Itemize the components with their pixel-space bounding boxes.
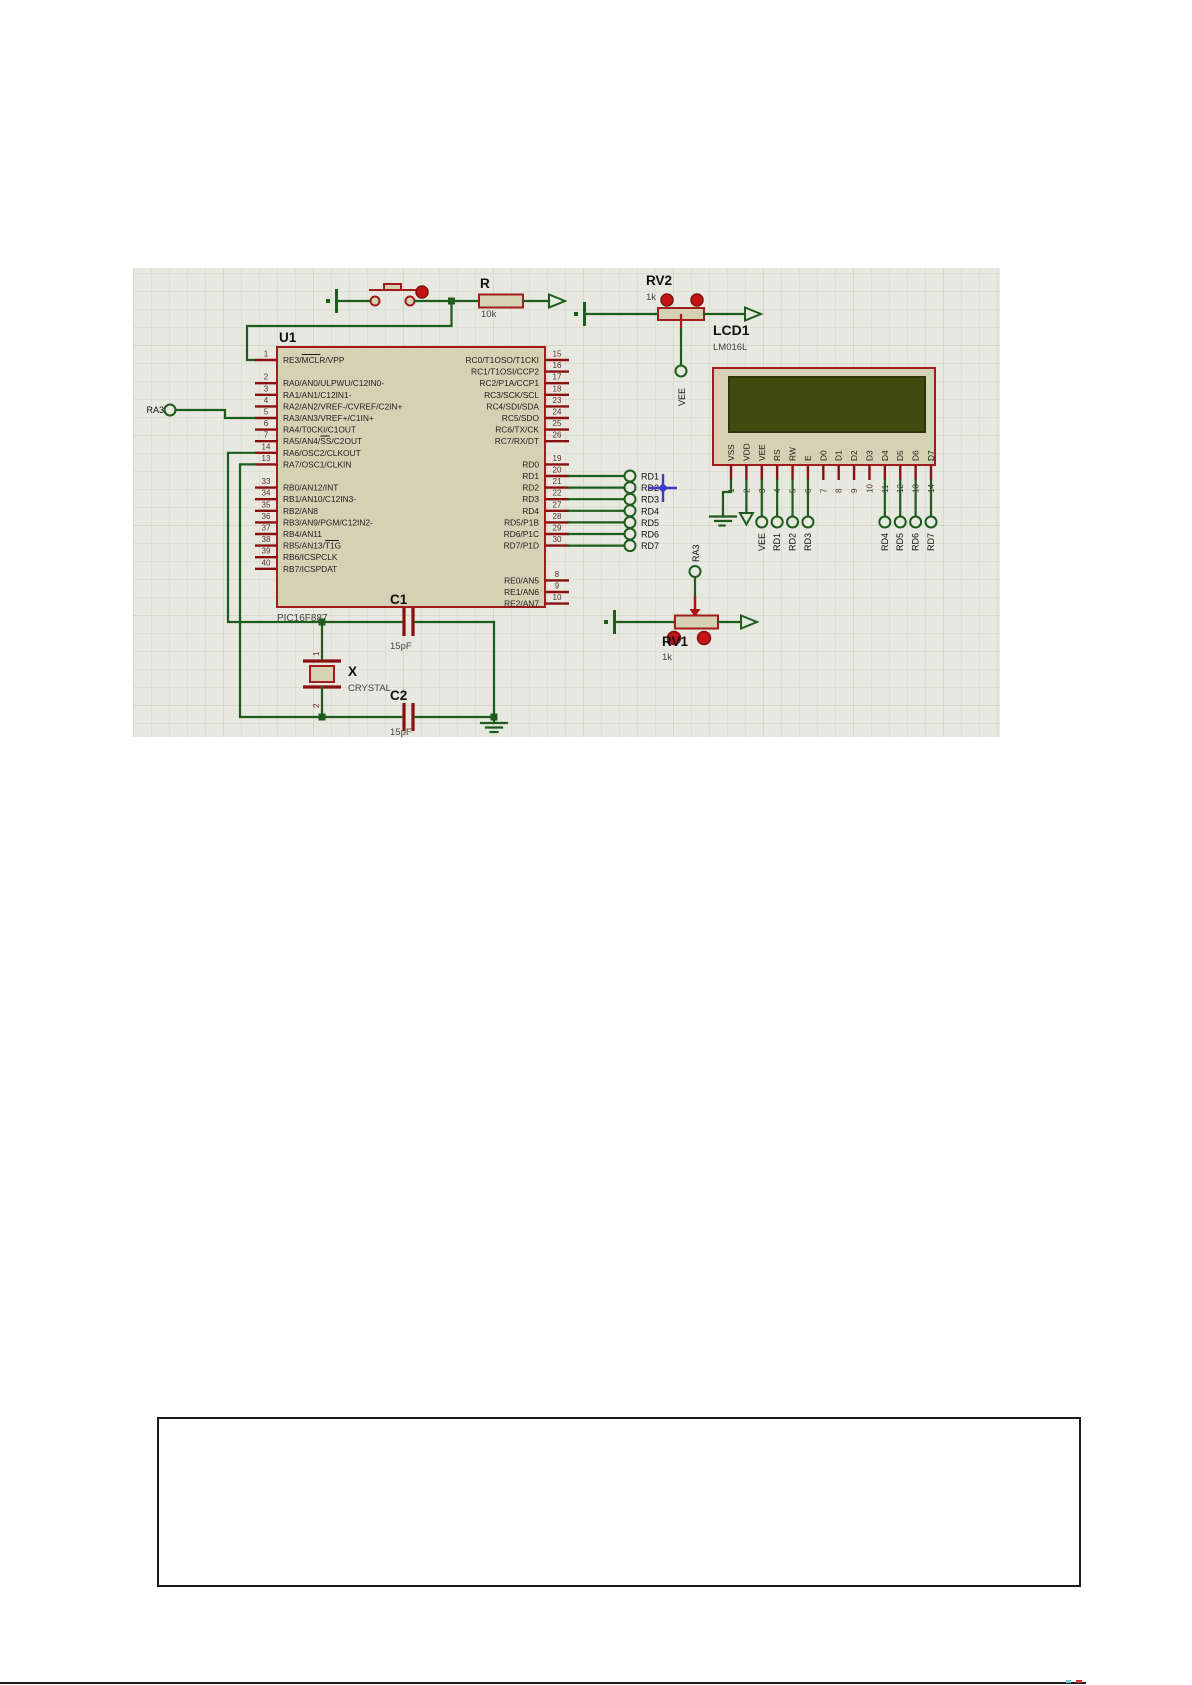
lcd-pin-label: VEE: [757, 444, 767, 461]
mcu-left-pin-name: RB7/ICSPDAT: [283, 564, 337, 574]
mcu-left-pin-number: 36: [262, 512, 271, 521]
schematic-image: R 10k RV2 1k VEE RA3: [133, 255, 1000, 737]
mcu-right-pin-number: 23: [553, 396, 562, 405]
lcd-pin-label: VDD: [741, 443, 751, 461]
mcu-right-pin-number: 27: [553, 500, 562, 509]
rd-terminal: [625, 529, 636, 540]
ra3-label: RA3: [146, 405, 164, 415]
mcu-left-pin-number: 35: [262, 500, 271, 509]
mcu-right-pin-name: RC2/P1A/CCP1: [479, 378, 539, 388]
vee-label: VEE: [677, 388, 687, 406]
mcu-left-pin-number: 33: [262, 477, 271, 486]
lcd-pin-number: 7: [819, 488, 828, 493]
mcu-right-pin-number: 29: [553, 524, 562, 533]
lcd-pin-label: D6: [911, 450, 921, 461]
power-dot: [574, 312, 578, 316]
mcu-left-pin-number: 5: [264, 408, 269, 417]
lcd-pin-label: D0: [818, 450, 828, 461]
mcu-right-pin-name: RD3: [522, 494, 539, 504]
mcu-left-pin-number: 7: [264, 431, 269, 440]
lcd-net-terminal-label: RD6: [911, 533, 921, 551]
lcd-net-terminal: [787, 517, 798, 528]
mcu-left-pin-number: 3: [264, 384, 269, 393]
mcu-right-pin-name: RD7/P1D: [504, 541, 539, 551]
rv2-ref: RV2: [646, 273, 672, 288]
ra3-label: RA3: [691, 544, 701, 562]
lcd-net-terminal: [756, 517, 767, 528]
lcd-pin-label: VSS: [726, 444, 736, 461]
lcd-part: LM016L: [713, 342, 747, 353]
mcu: U1 PIC16F887 1RE3/MCLR/VPP2RA0/AN0/ULPWU…: [255, 330, 569, 624]
rd-terminal: [625, 540, 636, 551]
rd-terminal-label: RD1: [641, 472, 659, 482]
lcd-pin-label: D2: [849, 450, 859, 461]
rd-terminal-label: RD5: [641, 518, 659, 528]
mcu-right-pin-number: 21: [553, 477, 562, 486]
lcd-net-terminal-label: RD7: [926, 533, 936, 551]
lcd-net-terminal: [895, 517, 906, 528]
mcu-left-pin-name: RB0/AN12/INT: [283, 483, 338, 493]
lcd-net-terminal: [926, 517, 937, 528]
lcd-pin-label: D4: [880, 450, 890, 461]
mcu-right-pin-number: 30: [553, 535, 562, 544]
mcu-left-pin-number: 1: [264, 350, 269, 359]
mcu-right-pin-name: RD6/P1C: [504, 529, 539, 539]
resistor-ref: R: [480, 276, 490, 291]
rd-terminal: [625, 505, 636, 516]
logic-state-dot: [416, 286, 428, 298]
rd-terminal: [625, 494, 636, 505]
mcu-right-pin-name: RC3/SCK/SCL: [484, 390, 539, 400]
lcd-net-terminal-label: RD3: [803, 533, 813, 551]
mcu-left-pin-number: 39: [262, 547, 271, 556]
empty-answer-box: [157, 1417, 1081, 1587]
mcu-right-pin-number: 22: [553, 489, 562, 498]
mcu-left-pin-name: RA6/OSC2/CLKOUT: [283, 448, 361, 458]
pushbutton-cap: [384, 284, 401, 290]
rd-terminal: [625, 482, 636, 493]
mcu-left-pin-name: RE3/MCLR/VPP: [283, 355, 345, 365]
lcd-pin-number: 9: [850, 488, 859, 493]
rd-terminal-label: RD4: [641, 506, 659, 516]
mcu-right-pin-number: 19: [553, 454, 562, 463]
mcu-left-pin-name: RB1/AN10/C12IN3-: [283, 494, 356, 504]
mcu-left-pin-number: 37: [262, 524, 271, 533]
lcd-pin-number: 10: [865, 484, 874, 493]
mcu-left-pin-name: RA2/AN2/VREF-/CVREF/C2IN+: [283, 401, 402, 411]
mcu-left-pin-name: RB4/AN11: [283, 529, 322, 539]
mcu-right-pin-name: RD4: [522, 506, 539, 516]
resistor-body: [479, 295, 523, 308]
mcu-left-pin-number: 14: [262, 442, 271, 451]
lcd-pin-label: D3: [864, 450, 874, 461]
crystal-pin1: 1: [312, 651, 321, 656]
rd-terminal: [625, 471, 636, 482]
mcu-right-pin-number: 8: [555, 570, 560, 579]
rd-terminal-label: RD3: [641, 495, 659, 505]
lcd-pin-label: D5: [895, 450, 905, 461]
rv2-value: 1k: [646, 292, 656, 303]
lcd-ref: LCD1: [713, 322, 750, 338]
lcd-pin-number: 8: [835, 488, 844, 493]
mcu-right-pin-name: RC0/T1OSO/T1CKI: [465, 355, 539, 365]
crystal-ref: X: [348, 664, 357, 679]
mcu-left-pin-number: 13: [262, 454, 271, 463]
mcu-left-pin-name: RA7/OSC1/CLKIN: [283, 459, 351, 469]
lcd-net-terminal: [802, 517, 813, 528]
mcu-right-pin-name: RC7/RX/DT: [495, 436, 539, 446]
mcu-ref: U1: [279, 330, 297, 345]
vee-terminal: [676, 366, 687, 377]
mcu-right-pin-name: RE1/AN6: [504, 587, 539, 597]
lcd-pin-label: D1: [834, 450, 844, 461]
rv1-value: 1k: [662, 652, 672, 663]
mcu-left-pin-name: RA1/AN1/C12IN1-: [283, 390, 352, 400]
mcu-left-pin-name: RA0/AN0/ULPWU/C12IN0-: [283, 378, 384, 388]
proteus-schematic: R 10k RV2 1k VEE RA3: [133, 255, 1000, 737]
mcu-right-pin-name: RC6/TX/CK: [495, 425, 539, 435]
rv1-ref: RV1: [662, 634, 689, 649]
wire-junction: [491, 714, 498, 721]
mcu-right-pin-number: 18: [553, 384, 562, 393]
mcu-right-pin-name: RD0: [522, 459, 539, 469]
bottom-rule: [0, 1682, 1086, 1684]
rule-mark-cyan: [1066, 1680, 1071, 1683]
mcu-right-pin-number: 25: [553, 419, 562, 428]
mcu-right-pin-name: RD5/P1B: [504, 517, 539, 527]
pushbutton-pin: [371, 297, 380, 306]
power-dot: [326, 299, 330, 303]
lcd-net-terminal: [879, 517, 890, 528]
lcd-net-terminal: [772, 517, 783, 528]
pot-dot: [698, 632, 711, 645]
mcu-left-pin-name: RB6/ICSPCLK: [283, 552, 338, 562]
image-crop-strip: [133, 255, 1000, 268]
mcu-right-pin-number: 20: [553, 466, 562, 475]
c1-value: 15pF: [390, 641, 412, 652]
mcu-right-pin-name: RE2/AN7: [504, 599, 539, 609]
lcd-net-terminal-label: RD1: [772, 533, 782, 551]
crystal-pin2: 2: [312, 703, 321, 708]
crystal-part: CRYSTAL: [348, 683, 391, 694]
mcu-right-pin-number: 16: [553, 361, 562, 370]
mcu-left-pin-number: 2: [264, 373, 269, 382]
mcu-left-pin-name: RB2/AN8: [283, 506, 318, 516]
mcu-right-pin-name: RC5/SDO: [502, 413, 540, 423]
lcd-net-terminal: [910, 517, 921, 528]
mcu-right-pin-name: RD1: [522, 471, 539, 481]
mcu-left-pin-number: 38: [262, 535, 271, 544]
mcu-right-pin-number: 9: [555, 582, 560, 591]
mcu-left-pin-number: 40: [262, 558, 271, 567]
pot-dot: [661, 294, 673, 306]
mcu-right-pin-number: 24: [553, 408, 562, 417]
lcd-net-terminal-label: RD2: [788, 533, 798, 551]
lcd-net-terminal-label: RD5: [895, 533, 905, 551]
crystal-body: [310, 666, 334, 682]
mcu-left-pin-number: 34: [262, 489, 271, 498]
rd-terminal-label: RD7: [641, 541, 659, 551]
mcu-right-pin-number: 15: [553, 350, 562, 359]
lcd-net-terminal-label: VEE: [757, 533, 767, 551]
lcd-pin-label: RW: [788, 447, 798, 461]
resistor-value: 10k: [481, 309, 497, 320]
lcd-pin-label: RS: [772, 449, 782, 461]
mcu-left-pin-number: 4: [264, 396, 269, 405]
mcu-right-pin-name: RC4/SDI/SDA: [486, 401, 539, 411]
ra3-terminal: [690, 566, 701, 577]
mcu-left-pin-number: 6: [264, 419, 269, 428]
mcu-left-pin-name: RA3/AN3/VREF+/C1IN+: [283, 413, 374, 423]
pushbutton-pin: [406, 297, 415, 306]
document-page: R 10k RV2 1k VEE RA3: [0, 0, 1192, 1685]
mcu-right-pin-name: RD2: [522, 483, 539, 493]
mcu-left-pin-name: RA5/AN4/SS/C2OUT: [283, 436, 362, 446]
lcd-pin-label: D7: [926, 450, 936, 461]
power-dot: [604, 620, 608, 624]
mcu-right-pin-name: RC1/T1OSI/CCP2: [471, 367, 539, 377]
c2-ref: C2: [390, 688, 407, 703]
mcu-left-pin-name: RA4/T0CKI/C1OUT: [283, 425, 356, 435]
ra3-terminal: [165, 405, 176, 416]
lcd-net-terminal-label: RD4: [880, 533, 890, 551]
wire-junction: [319, 714, 326, 721]
mcu-right-pin-name: RE0/AN5: [504, 575, 539, 585]
rd-terminal: [625, 517, 636, 528]
lcd-pin-label: E: [803, 455, 813, 461]
mcu-right-pin-number: 10: [553, 593, 562, 602]
rd-terminal-label: RD6: [641, 530, 659, 540]
mcu-right-pin-number: 28: [553, 512, 562, 521]
rule-mark-red: [1076, 1680, 1082, 1683]
lcd-screen: [729, 377, 925, 432]
mcu-right-pin-number: 26: [553, 431, 562, 440]
mcu-left-pin-name: RB3/AN9/PGM/C12IN2-: [283, 517, 373, 527]
rv1-pot-body: [675, 616, 718, 629]
mcu-right-pin-number: 17: [553, 373, 562, 382]
mcu-left-pin-name: RB5/AN13/T1G: [283, 541, 341, 551]
c1-ref: C1: [390, 592, 408, 607]
pot-dot: [691, 294, 703, 306]
c2-value: 15pF: [390, 727, 412, 737]
